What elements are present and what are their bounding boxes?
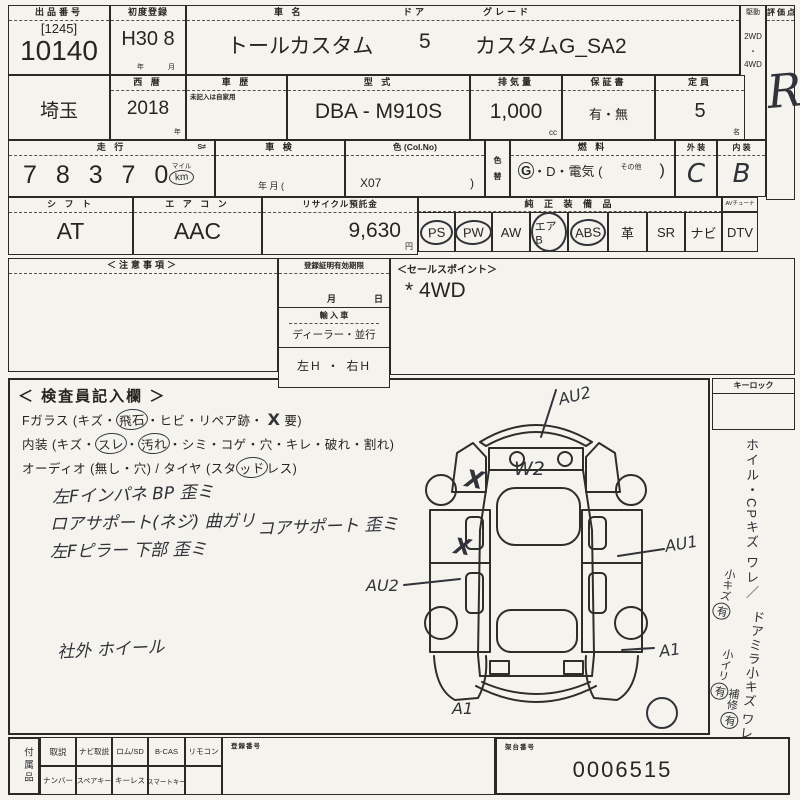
- equipment-airbag: エアB: [530, 212, 568, 252]
- color-change-bottom: 替: [486, 171, 509, 182]
- inspector-interior-line: 内装 (キズ・スレ・汚れ・シミ・コゲ・穴・キレ・破れ・割れ): [22, 433, 394, 454]
- color-change-cell: 色 替: [485, 140, 510, 197]
- equipment-leather: 革: [608, 212, 647, 252]
- serial-number-label: 架台番号: [505, 741, 535, 751]
- side-note-small-scratch: 小キズ有: [711, 567, 739, 622]
- door-label: ドア: [403, 6, 427, 19]
- accessory-remote: リモコン: [185, 737, 222, 766]
- equipment-sunroof: SR: [647, 212, 685, 252]
- prefecture-value: 埼玉: [9, 96, 109, 123]
- registration-date-row: 月 日: [279, 273, 389, 308]
- audio-circled: ッド: [235, 456, 268, 479]
- side-note-small-crack-text: 小イリ: [716, 647, 735, 682]
- score-label: 評価点: [767, 6, 794, 21]
- model-cell: 型 式 DBA - M910S: [287, 75, 470, 140]
- interior-circled-sure: スレ: [94, 432, 127, 455]
- inspector-glass-line: Fガラス (キズ・飛石・ヒビ・リペア跡・X要): [22, 409, 302, 430]
- first-registration-year-unit: 年: [137, 62, 144, 72]
- keylock-box: キーロック: [712, 378, 795, 430]
- mileage-label: 走 行: [97, 142, 127, 152]
- shift-cell: シ フ ト AT: [8, 197, 133, 255]
- mileage-cell: 走 行 S≠ 7 8 3 7 0 マイル km: [8, 140, 215, 197]
- exterior-label: 外 装: [676, 141, 716, 156]
- side-note-repair-text: 補修: [725, 687, 740, 710]
- glass-text-1: Fガラス (キズ・: [22, 414, 117, 428]
- displacement-unit: cc: [549, 128, 557, 137]
- accessory-number-plate: ナンバー: [40, 766, 76, 795]
- import-label: 輸 入 車: [289, 310, 379, 324]
- inspector-note-3: コアサポート 歪ミ: [257, 510, 399, 540]
- equipment-label: 純 正 装 備 品: [418, 197, 722, 212]
- divider: [279, 347, 389, 348]
- accessory-blank: [185, 766, 222, 795]
- registration-month-unit: 月: [327, 292, 336, 305]
- equipment-leather-label: 革: [621, 223, 634, 242]
- score-value: R: [765, 63, 797, 119]
- equipment-dtv-label: DTV: [727, 225, 753, 240]
- lot-label: 出品番号: [9, 6, 109, 21]
- equipment-ps-label: PS: [419, 219, 454, 246]
- sales-point-box: ＜セールスポイント＞ * 4WD: [390, 258, 795, 375]
- color-change-top: 色: [486, 155, 509, 166]
- equipment-dtv: DTV: [722, 212, 758, 252]
- equipment-pw-label: PW: [454, 219, 492, 246]
- displacement-value: 1,000: [471, 100, 561, 124]
- registration-day-unit: 日: [374, 292, 383, 305]
- interior-grade: B: [718, 159, 765, 189]
- history-cell: 車 歴 未記入は自家用: [186, 75, 287, 140]
- sales-point-label: ＜セールスポイント＞: [397, 261, 497, 276]
- first-registration-cell: 初度登録 H30 8 年 月: [110, 5, 186, 75]
- shift-label: シ フ ト: [9, 198, 132, 213]
- inspector-box: ＜ 検査員記入欄 ＞ Fガラス (キズ・飛石・ヒビ・リペア跡・X要) 内装 (キ…: [8, 378, 710, 735]
- inspector-note-2: ロアサポート(ネジ) 曲ガリ: [50, 506, 256, 535]
- equipment-aw: AW: [492, 212, 530, 252]
- score-cell: 評価点 R: [766, 5, 795, 200]
- equipment-navi: ナビ: [685, 212, 722, 252]
- equipment-navi-label: ナビ: [690, 223, 716, 242]
- displacement-cell: 排気量 1,000 cc: [470, 75, 562, 140]
- history-label: 車 歴: [187, 76, 286, 91]
- accessory-manual: 取説: [40, 737, 76, 766]
- color-label: 色 (Col.No): [346, 141, 484, 156]
- handle-value: 左H ・ 右H: [279, 357, 389, 374]
- grade-value: カスタムG_SA2: [475, 30, 627, 60]
- mileage-header: 走 行 S≠: [9, 141, 214, 156]
- equipment-airbag-label: エアB: [530, 211, 568, 253]
- lot-bracket: [1245]: [9, 21, 109, 36]
- sales-point-value: * 4WD: [405, 279, 466, 303]
- name-grade-header: 車 名 ドア グレード: [187, 6, 739, 21]
- name-grade-cell: 車 名 ドア グレード トールカスタム 5 カスタムG_SA2: [186, 5, 740, 75]
- capacity-cell: 定員 5 名: [655, 75, 745, 140]
- registration-number-label: 登録番号: [231, 740, 261, 750]
- registration-validity-label: 登録証明有効期限: [279, 259, 389, 274]
- warranty-value: 有・無: [563, 104, 654, 123]
- mileage-km-unit: km: [169, 169, 195, 185]
- accessories-label: 付属品: [20, 747, 34, 785]
- shift-value: AT: [9, 218, 132, 245]
- glass-text-3: 要): [284, 414, 302, 428]
- accessory-spare-key: スペアキー: [76, 766, 112, 795]
- inspector-note-wheels: 社外 ホイール: [56, 632, 165, 663]
- equipment-ps: PS: [418, 212, 455, 252]
- lot-cell: 出品番号 [1245] 10140: [8, 5, 110, 75]
- exterior-cell: 外 装 C: [675, 140, 717, 197]
- color-paren: ): [470, 176, 474, 190]
- aircon-label: エ ア コ ン: [134, 198, 261, 213]
- accessory-bcas: B-CAS: [148, 737, 185, 766]
- warranty-label: 保証書: [563, 76, 654, 91]
- side-note-small-scratch-circle: 有: [711, 601, 732, 621]
- grade-label: グレード: [483, 6, 531, 19]
- side-note-small-scratch-text: 小キズ: [718, 567, 737, 602]
- year-cell: 西 暦 2018 年: [110, 75, 186, 140]
- side-note-repair-circle: 有: [719, 711, 739, 730]
- glass-hand-x: X: [268, 410, 281, 429]
- mileage-unit: マイル km: [169, 160, 194, 185]
- first-registration-label: 初度登録: [111, 6, 185, 21]
- inspection-units: 年 月 (: [258, 179, 284, 192]
- color-value: X07: [360, 176, 381, 190]
- fuel-close-paren: ): [659, 162, 664, 180]
- glass-circled-tobiishi: 飛石: [115, 408, 148, 431]
- registration-validity-box: 登録証明有効期限 月 日 輸 入 車 ディーラー・並行 左H ・ 右H: [278, 258, 390, 388]
- capacity-label: 定員: [656, 76, 744, 91]
- import-value: ディーラー・並行: [279, 327, 389, 342]
- fuel-label: 燃 料: [511, 141, 674, 156]
- interior-text-1: 内装 (キズ・: [22, 438, 96, 452]
- equipment-sunroof-label: SR: [657, 225, 675, 240]
- drive-option-4wd: 4WD: [741, 60, 765, 69]
- glass-text-2: ・ヒビ・リペア跡・: [147, 414, 264, 428]
- first-registration-value: H30 8: [111, 28, 185, 51]
- recycle-label: リサイクル預託金: [263, 198, 417, 213]
- exterior-grade: C: [676, 159, 716, 189]
- warranty-cell: 保証書 有・無: [562, 75, 655, 140]
- color-cell: 色 (Col.No) X07 ): [345, 140, 485, 197]
- history-note: 未記入は自家用: [190, 91, 236, 101]
- aircon-value: AAC: [134, 218, 261, 245]
- recycle-unit: 円: [405, 241, 413, 252]
- car-name-label: 車 名: [274, 6, 304, 19]
- fuel-other-label: その他: [620, 162, 641, 172]
- accessories-label-cell: 付属品: [8, 737, 40, 795]
- drive-label: 駆動: [741, 7, 765, 17]
- inspector-title: ＜ 検査員記入欄 ＞: [18, 385, 166, 406]
- year-value: 2018: [111, 98, 185, 120]
- accessory-rom-sd: ロム/SD: [112, 737, 148, 766]
- inspector-note-4: 左Fピラー 下部 歪ミ: [50, 535, 207, 563]
- mileage-mile-unit: マイル: [172, 160, 192, 170]
- displacement-label: 排気量: [471, 76, 561, 91]
- inspection-cell: 車 検 年 月 (: [215, 140, 345, 197]
- side-note-mirror: ドアミラ小キズ ワレ: [735, 609, 768, 741]
- audio-text-2: レス): [267, 462, 298, 476]
- fuel-options: ・D・電気 (: [533, 161, 602, 180]
- serial-number-box: 架台番号 0006515: [495, 737, 790, 795]
- serial-number-value: 0006515: [497, 757, 748, 783]
- accessory-keyless: キーレス: [112, 766, 148, 795]
- accessory-smart-key: スマートキー: [148, 766, 185, 795]
- first-registration-month-unit: 月: [168, 62, 175, 72]
- drive-option-2wd: 2WD: [741, 32, 765, 41]
- interior-text-3: ・シミ・コゲ・穴・キレ・破れ・割れ): [169, 438, 395, 452]
- car-name-value: トールカスタム: [227, 30, 373, 60]
- capacity-value: 5: [656, 100, 744, 123]
- caution-box: ＜注意事項＞: [8, 258, 278, 372]
- capacity-unit: 名: [733, 127, 740, 137]
- recycle-cell: リサイクル預託金 9,630 円: [262, 197, 418, 255]
- equipment-abs-label: ABS: [569, 218, 606, 247]
- equipment-aw-label: AW: [501, 225, 521, 240]
- auction-sheet: 出品番号 [1245] 10140 初度登録 H30 8 年 月 車 名 ドア …: [0, 0, 800, 800]
- prefecture-cell: 埼玉: [8, 75, 110, 140]
- fuel-cell: 燃 料 G ・D・電気 ( その他 ): [510, 140, 675, 197]
- av-tuner-label: AVチューナー無: [722, 197, 758, 212]
- interior-cell: 内 装 B: [717, 140, 766, 197]
- drive-separator: ・: [741, 46, 765, 57]
- registration-number-box: 登録番号: [222, 737, 495, 795]
- interior-label: 内 装: [718, 141, 765, 156]
- interior-circled-yogore: 汚れ: [137, 432, 170, 455]
- inspector-audio-line: オーディオ (無し・穴) / タイヤ (スタッドレス): [22, 457, 297, 478]
- door-value: 5: [419, 30, 431, 54]
- equipment-pw: PW: [455, 212, 492, 252]
- year-label: 西 暦: [111, 76, 185, 91]
- keylock-label: キーロック: [713, 379, 794, 394]
- fuel-gasoline-circled: G: [517, 161, 534, 179]
- inspection-label: 車 検: [216, 141, 344, 156]
- year-unit: 年: [174, 127, 181, 137]
- model-label: 型 式: [288, 76, 469, 91]
- fuel-value: G ・D・電気 ( その他 ): [519, 161, 665, 180]
- caution-label: ＜注意事項＞: [9, 259, 277, 274]
- audio-text-1: オーディオ (無し・穴) / タイヤ (スタ: [22, 462, 237, 476]
- recycle-value: 9,630: [348, 219, 401, 243]
- aircon-cell: エ ア コ ン AAC: [133, 197, 262, 255]
- accessory-navi-manual: ナビ取説: [76, 737, 112, 766]
- inspector-note-1: 左Fインパネ BP 歪ミ: [52, 477, 214, 508]
- mileage-value: 7 8 3 7 0: [23, 161, 174, 190]
- model-value: DBA - M910S: [288, 100, 469, 124]
- mileage-flag: S≠: [197, 141, 206, 154]
- lot-number: 10140: [9, 35, 109, 67]
- interior-text-2: ・: [126, 438, 139, 452]
- side-note-wheel: ホイル・CPキズ ワレ／: [742, 438, 761, 601]
- equipment-abs: ABS: [568, 212, 608, 252]
